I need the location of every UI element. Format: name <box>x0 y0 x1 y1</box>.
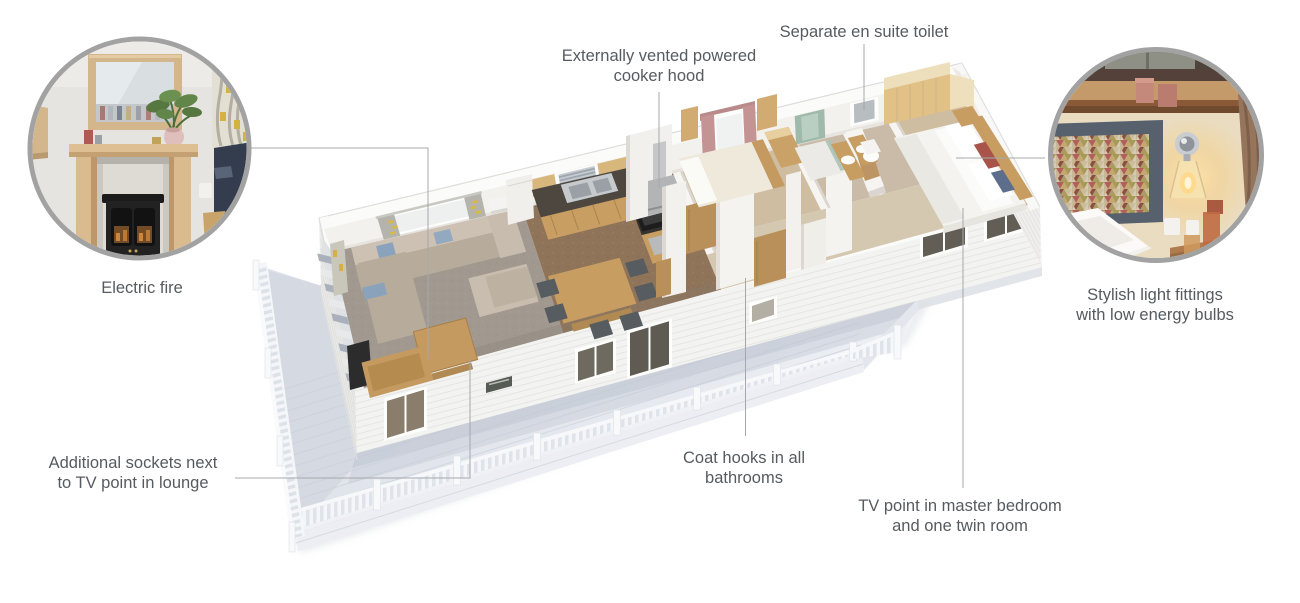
svg-text:and one twin room: and one twin room <box>892 517 1028 535</box>
svg-text:Electric fire: Electric fire <box>101 279 183 297</box>
svg-text:with low energy bulbs: with low energy bulbs <box>1075 306 1234 324</box>
svg-text:Stylish light fittings: Stylish light fittings <box>1087 286 1223 304</box>
svg-text:Separate en suite toilet: Separate en suite toilet <box>780 23 949 41</box>
svg-text:Additional sockets next: Additional sockets next <box>49 454 218 472</box>
svg-text:cooker hood: cooker hood <box>614 67 705 85</box>
svg-text:to TV point in lounge: to TV point in lounge <box>57 474 208 492</box>
svg-text:Coat hooks in all: Coat hooks in all <box>683 449 805 467</box>
svg-text:TV point in master bedroom: TV point in master bedroom <box>858 497 1062 515</box>
svg-text:bathrooms: bathrooms <box>705 469 783 487</box>
svg-text:Externally vented powered: Externally vented powered <box>562 47 756 65</box>
